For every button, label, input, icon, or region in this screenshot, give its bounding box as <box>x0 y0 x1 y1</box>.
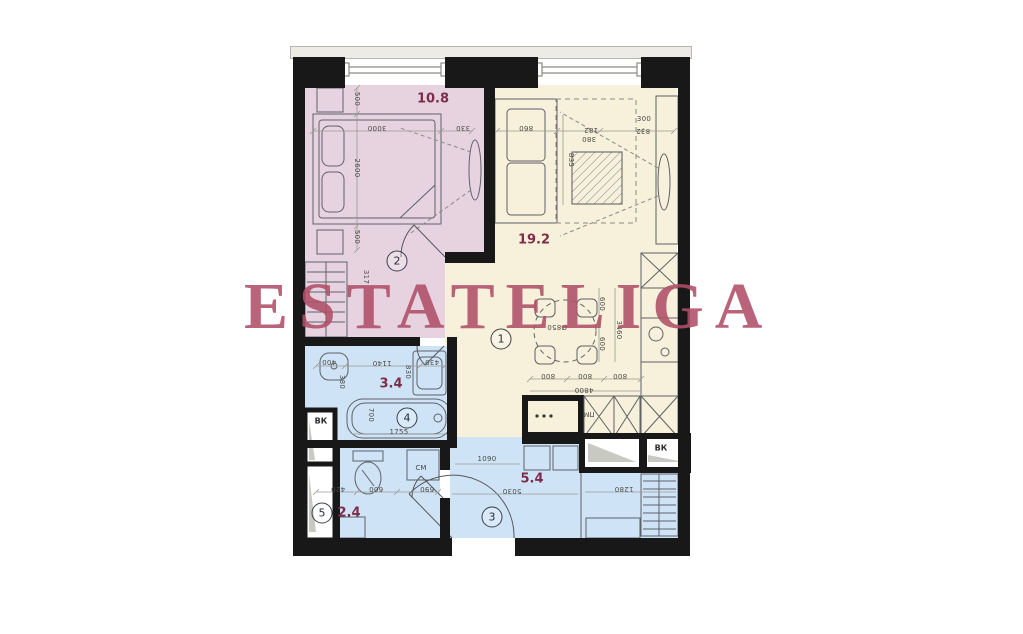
label-dim-330: 330 <box>456 124 470 132</box>
label-dim-1280: 1280 <box>614 485 633 493</box>
label-dim-2600: 2600 <box>353 158 361 177</box>
floor-plan: 10.819.23.42.45.421453ВКВКСМПМ3000330500… <box>0 0 1023 634</box>
label-dim-832: 832 <box>636 127 650 135</box>
label-dim-5030: 5030 <box>502 487 521 495</box>
label-dim-800-c: 800 <box>613 372 627 380</box>
watermark-text: ESTATELIGA <box>244 274 773 340</box>
label-dim-400: 400 <box>322 358 336 366</box>
label-dim-860: 860 <box>519 124 533 132</box>
label-area-bathroom: 3.4 <box>379 377 402 392</box>
label-area-bedroom: 10.8 <box>417 92 449 107</box>
label-area-living: 19.2 <box>518 233 550 248</box>
label-dim-380: 380 <box>582 135 596 143</box>
label-dim-430: 430 <box>425 358 439 366</box>
label-dim-600-wc: 600 <box>369 485 383 493</box>
label-area-wc: 2.4 <box>337 506 360 521</box>
label-room-number-3: 3 <box>482 507 503 528</box>
label-vent-shaft-left: ВК <box>315 417 328 426</box>
label-area-hall: 5.4 <box>520 472 543 487</box>
label-room-number-4: 4 <box>397 408 418 429</box>
label-dim-3000: 3000 <box>367 124 386 132</box>
label-dim-380-basin: 380 <box>338 375 346 389</box>
label-dim-800-b: 800 <box>578 372 592 380</box>
label-vent-shaft-right: ВК <box>655 444 668 453</box>
label-dishwasher-label: ПМ <box>583 410 594 418</box>
label-room-number-5: 5 <box>312 503 333 524</box>
label-dim-1140: 1140 <box>372 359 391 367</box>
label-dim-800-a: 800 <box>541 372 555 380</box>
label-room-number-2: 2 <box>387 251 408 272</box>
label-dim-420: 420 <box>331 485 345 493</box>
label-dim-700: 700 <box>367 408 375 422</box>
label-dim-830: 830 <box>404 365 412 379</box>
label-dim-300: 300 <box>637 115 651 123</box>
label-dim-4800: 4800 <box>574 386 593 394</box>
label-dim-1755: 1755 <box>389 428 408 436</box>
label-dim-182: 182 <box>584 126 598 134</box>
label-dim-1090: 1090 <box>477 455 496 463</box>
label-dim-500-bottom: 500 <box>353 230 361 244</box>
label-dim-690: 690 <box>420 485 434 493</box>
label-washer-label: СМ <box>416 464 427 472</box>
label-dim-835: 835 <box>567 153 575 167</box>
label-dim-500-top: 500 <box>353 92 361 106</box>
